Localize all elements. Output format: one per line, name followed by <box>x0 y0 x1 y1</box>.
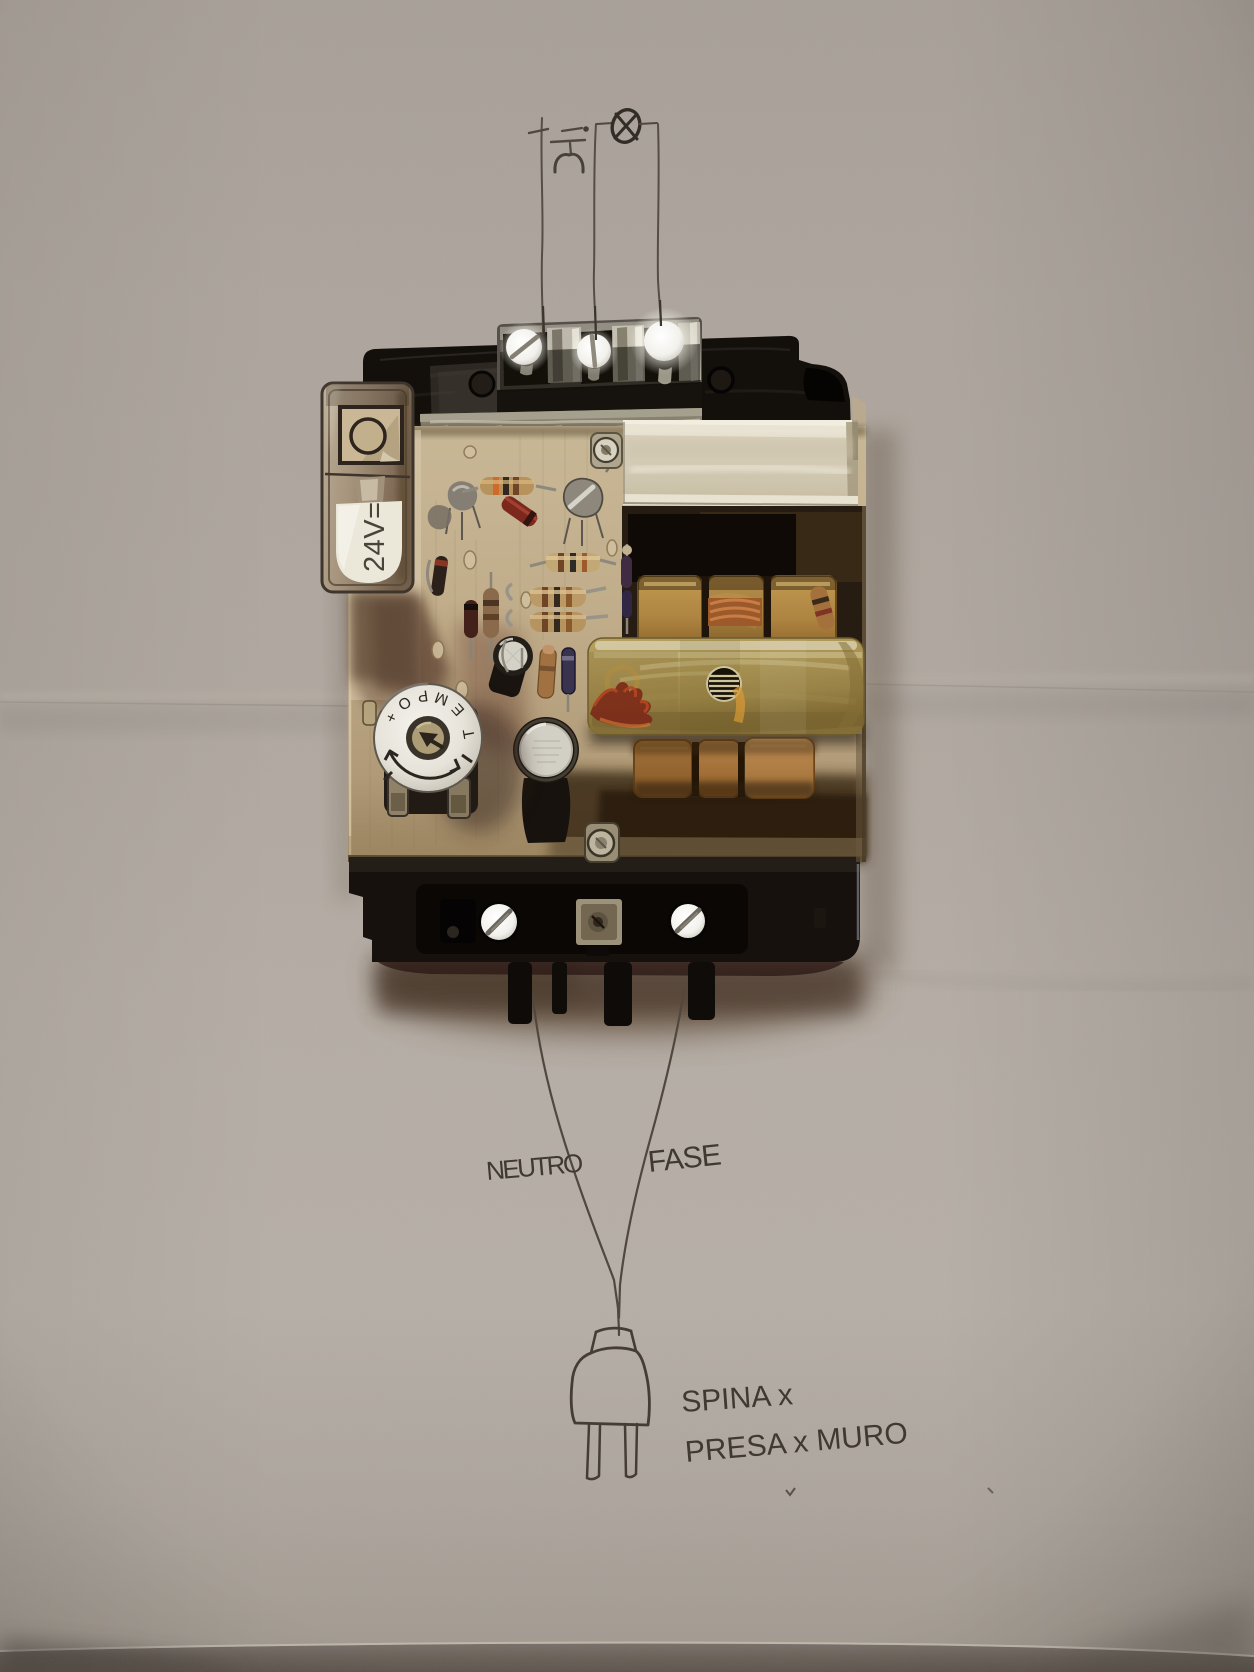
svg-text:24V=: 24V= <box>359 501 391 572</box>
